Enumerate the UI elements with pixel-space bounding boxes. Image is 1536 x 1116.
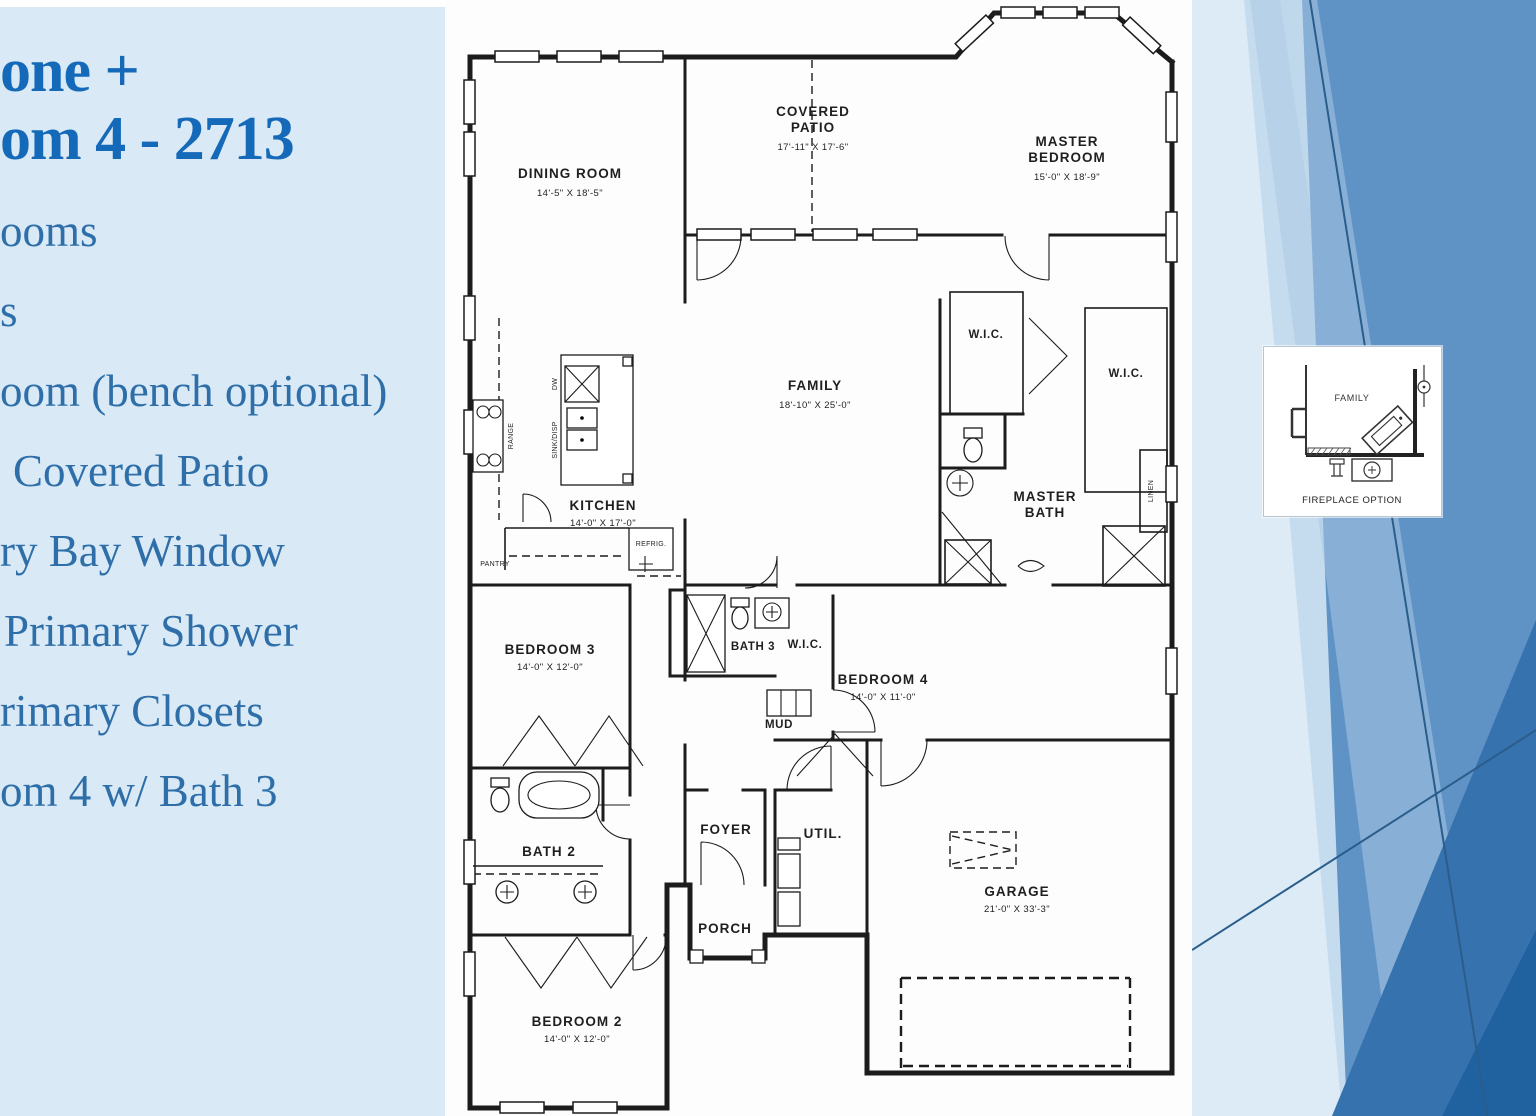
- dims-bedroom2: 14'-0" X 12'-0": [544, 1034, 610, 1045]
- label-bath2: BATH 2: [522, 844, 576, 859]
- fireplace-option-inset: FAMILY FIREPLACE OPTION: [1263, 346, 1442, 517]
- label-masterbath-1: MASTER: [1014, 489, 1077, 504]
- inset-caption: FIREPLACE OPTION: [1302, 495, 1402, 506]
- feature-item: rimary Closets: [0, 685, 445, 765]
- feature-item: om 4 w/ Bath 3: [0, 765, 445, 845]
- label-master-1: MASTER: [1036, 134, 1099, 149]
- label-bath3: BATH 3: [731, 641, 775, 653]
- decorative-background: [1192, 0, 1536, 1116]
- feature-item: Covered Patio: [0, 445, 445, 525]
- room-labels: DINING ROOM 14'-5" X 18'-5" COVERED PATI…: [505, 104, 1144, 1045]
- label-bedroom4: BEDROOM 4: [838, 672, 929, 687]
- feature-item: oom (bench optional): [0, 365, 445, 445]
- inset-walls: [1292, 365, 1430, 481]
- label-range: RANGE: [508, 423, 515, 449]
- label-family: FAMILY: [788, 378, 842, 393]
- dims-dining: 14'-5" X 18'-5": [537, 188, 603, 199]
- inset-fireplace: [1362, 406, 1412, 454]
- label-wic-right: W.I.C.: [1109, 368, 1144, 380]
- label-master-2: BEDROOM: [1028, 150, 1106, 165]
- feature-item: ry Bay Window: [0, 525, 445, 605]
- label-porch: PORCH: [698, 921, 752, 936]
- feature-item: Primary Shower: [0, 605, 445, 685]
- info-panel: one + om 4 - 2713 ooms s oom (bench opti…: [0, 0, 445, 1116]
- label-util: UTIL.: [804, 826, 843, 841]
- label-sink-disp: SINK/DISP: [552, 421, 559, 458]
- plan-title: one + om 4 - 2713: [0, 37, 445, 173]
- dims-garage: 21'-0" X 33'-3": [984, 904, 1050, 915]
- label-wic-left: W.I.C.: [969, 329, 1004, 341]
- inset-family-label: FAMILY: [1335, 393, 1370, 403]
- floor-plan: DINING ROOM 14'-5" X 18'-5" COVERED PATI…: [445, 0, 1192, 1116]
- label-bedroom2: BEDROOM 2: [532, 1014, 623, 1029]
- fireplace-inset-drawing: FAMILY FIREPLACE OPTION: [1264, 347, 1441, 514]
- dims-bedroom4: 14'-0" X 11'-0": [850, 692, 915, 703]
- plan-title-line2: om 4 - 2713: [0, 105, 445, 173]
- dims-kitchen: 14'-0" X 17'-0": [570, 518, 636, 529]
- kitchen-fixtures: [473, 355, 673, 572]
- label-kitchen: KITCHEN: [570, 498, 637, 513]
- label-refrig: REFRIG.: [636, 541, 667, 548]
- dims-master: 15'-0" X 18'-9": [1034, 172, 1100, 183]
- feature-item: s: [0, 285, 445, 365]
- label-pantry: PANTRY: [480, 561, 510, 568]
- label-masterbath-2: BATH: [1025, 505, 1066, 520]
- feature-item: ooms: [0, 205, 445, 285]
- bath-fixtures: [473, 428, 1044, 963]
- background-shapes: [1192, 0, 1536, 1116]
- label-mud: MUD: [765, 719, 793, 731]
- floor-plan-drawing: DINING ROOM 14'-5" X 18'-5" COVERED PATI…: [445, 0, 1192, 1116]
- label-dw: DW: [552, 378, 559, 390]
- label-linen: LINEN: [1148, 480, 1155, 502]
- feature-list: ooms s oom (bench optional) Covered Pati…: [0, 205, 445, 845]
- label-patio-2: PATIO: [791, 120, 835, 135]
- label-patio-1: COVERED: [776, 104, 850, 119]
- label-bedroom3: BEDROOM 3: [505, 642, 596, 657]
- label-garage: GARAGE: [984, 884, 1049, 899]
- label-foyer: FOYER: [700, 822, 752, 837]
- dims-patio: 17'-11" X 17'-6": [778, 142, 849, 153]
- slide-root: one + om 4 - 2713 ooms s oom (bench opti…: [0, 0, 1536, 1116]
- label-wic-bed4: W.I.C.: [788, 639, 823, 651]
- label-dining: DINING ROOM: [518, 166, 622, 181]
- dims-family: 18'-10" X 25'-0": [779, 400, 851, 411]
- dashed-lines: [473, 60, 1130, 1073]
- plan-title-line1: one +: [0, 37, 445, 105]
- dims-bedroom3: 14'-0" X 12'-0": [517, 662, 583, 673]
